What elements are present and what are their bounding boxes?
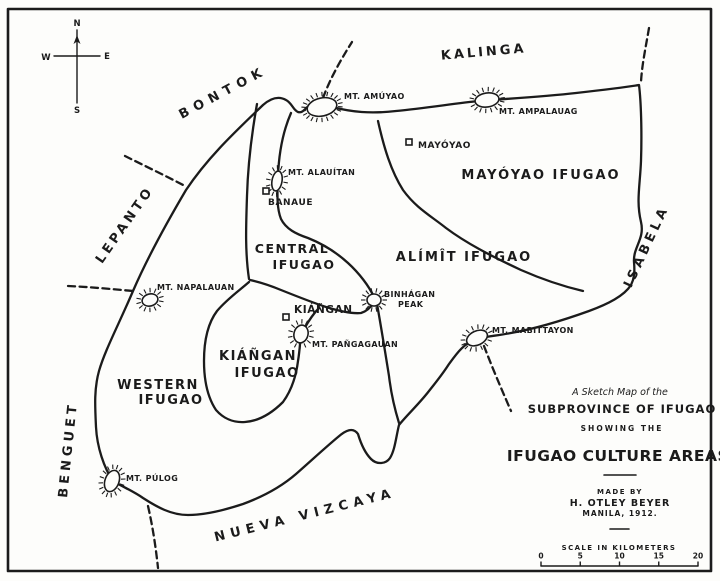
sketch-map-page: N E S W KALINGABONTOKLEPANTOBENGUETISABE… [0, 0, 720, 581]
place-date-label: MANILA, 1912. [582, 509, 657, 518]
title-line1: A Sketch Map of the [571, 387, 668, 398]
province-label-benguet: BENGUET [56, 401, 81, 499]
scale-tick-label-10: 10 [614, 552, 624, 561]
region-label-alimit-ifugao: ALÍMÎT IFUGAO [396, 249, 532, 265]
scale-tick-label-0: 0 [538, 552, 543, 561]
region-label-mayoyao-ifugao: MAYÓYAO IFUGAO [461, 167, 620, 183]
scale-tick-label-20: 20 [693, 552, 703, 561]
scale-bar: SCALE IN KILOMETERS 05101520 [538, 544, 703, 566]
author-label: H. OTLEY BEYER [570, 498, 671, 509]
region-label-kiangan-ifugao-line2: IFUGAO [234, 366, 299, 381]
region-label-central-ifugao-line2: IFUGAO [273, 257, 336, 272]
mt-amuyao-label: MT. AMÚYAO [344, 90, 405, 101]
mt-napalauan-label: MT. NAPALAUAN [157, 283, 235, 292]
bontok-kalinga-dashed-border [323, 42, 352, 98]
mayoyao-alimit-boundary [378, 121, 583, 291]
compass-south-label: S [74, 106, 80, 116]
region-label-central-ifugao-line1: CENTRAL [255, 241, 329, 256]
mabittayon-south-dashed-border [484, 346, 511, 411]
banaue-town-square-icon [263, 188, 269, 194]
mt-mabittayon-burst-icon [456, 319, 498, 357]
province-label-kalinga: KALINGA [440, 41, 527, 63]
banaue-town-label: BANAUE [268, 198, 313, 208]
mt-pulog-burst-icon [94, 461, 130, 502]
compass-east-label: E [104, 52, 110, 62]
mt-pulog-label: MT. PÚLOG [126, 472, 178, 483]
compass-west-label: W [41, 53, 51, 63]
title-block: A Sketch Map of the SUBPROVINCE OF IFUGA… [507, 387, 720, 529]
scale-tick-label-5: 5 [578, 552, 583, 561]
scale-tick-label-15: 15 [654, 552, 664, 561]
binhagan-south-boundary [377, 304, 399, 423]
mayoyao-town-label: MAYÓYAO [418, 139, 471, 151]
region-label-western-ifugao-line1: WESTERN [117, 378, 199, 393]
province-label-nueva-vizcaya: NUEVA VIZCAYA [213, 486, 398, 546]
mt-mabittayon-label: MT. MABITTAYON [492, 326, 574, 335]
title-line3: SHOWING THE [581, 424, 664, 433]
kiangan-town-label: KIÁÑGAN [294, 303, 353, 316]
lepanto-bontok-dashed-border [125, 156, 185, 186]
binhagan-peak-label: BINHÁGAN [384, 288, 435, 299]
kalinga-isabela-dashed-border [641, 28, 649, 82]
region-label-kiangan-ifugao-line1: KIÁÑGAN [219, 348, 297, 364]
province-label-isabela: ISABELA [621, 203, 672, 290]
mt-pangagauan-label: MT. PAÑGAGAUAN [312, 339, 398, 349]
kiangan-town-square-icon [283, 314, 289, 320]
mt-amuyao-burst-icon [298, 88, 345, 126]
region-label-western-ifugao-line2: IFUGAO [138, 393, 203, 408]
title-line4: IFUGAO CULTURE AREAS [507, 447, 720, 465]
lepanto-benguet-dashed-border [68, 286, 133, 291]
mayoyao-town-square-icon [406, 139, 412, 145]
binhagan-peak-label-line2: PEAK [398, 300, 424, 309]
title-line2: SUBPROVINCE OF IFUGAO [528, 402, 716, 416]
province-label-lepanto: LEPANTO [93, 183, 157, 266]
compass-rose: N E S W [41, 19, 110, 116]
mt-alauitan-label: MT. ALAUÍTAN [288, 166, 355, 177]
compass-north-label: N [73, 19, 80, 29]
mt-ampalauag-label: MT. AMPALAUAG [499, 107, 578, 116]
made-by-label: MADE BY [597, 488, 643, 496]
benguet-vizcaya-dashed-border [148, 506, 158, 568]
